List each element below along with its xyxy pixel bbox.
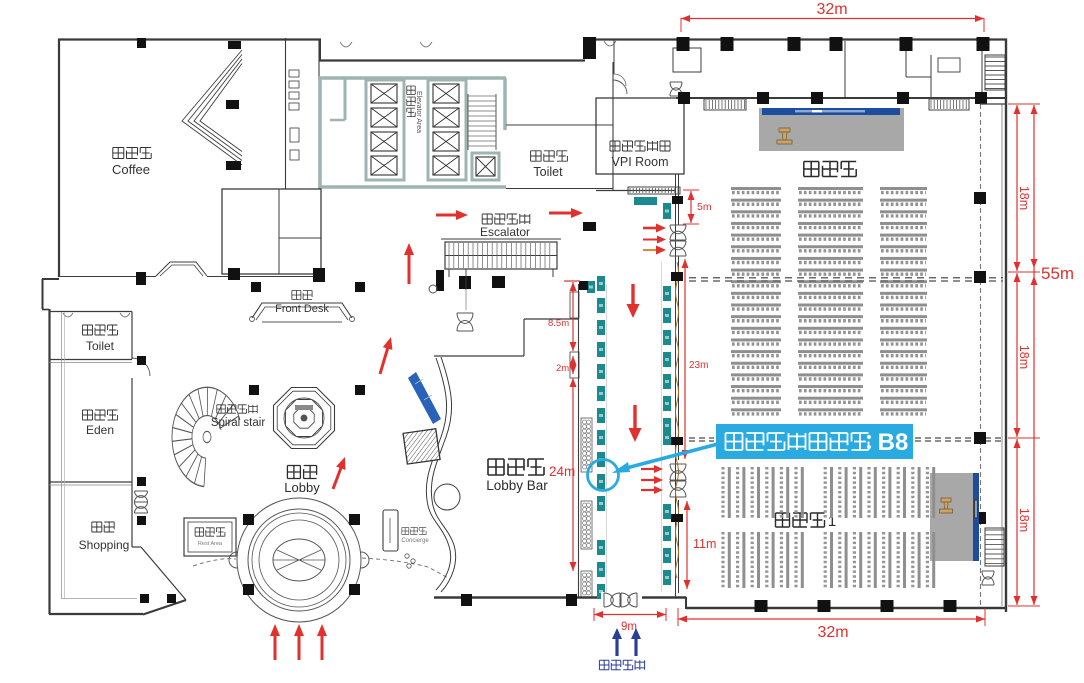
- svg-text:18m: 18m: [1017, 508, 1031, 532]
- svg-text:18m: 18m: [1017, 186, 1031, 210]
- svg-text:Elevator Area: Elevator Area: [415, 91, 422, 133]
- svg-text:VPI Room: VPI Room: [612, 155, 669, 169]
- svg-text:Shopping: Shopping: [79, 538, 130, 552]
- svg-text:11m: 11m: [693, 537, 716, 551]
- svg-text:Escalator: Escalator: [480, 225, 530, 239]
- svg-text:5m: 5m: [697, 201, 712, 213]
- svg-text:8.5m: 8.5m: [548, 318, 569, 329]
- svg-text:32m: 32m: [817, 624, 848, 641]
- svg-text:24m: 24m: [549, 464, 575, 479]
- svg-text:Concierge: Concierge: [401, 538, 429, 544]
- svg-text:55m: 55m: [1041, 264, 1074, 283]
- svg-text:Spiral stair: Spiral stair: [211, 417, 265, 429]
- svg-text:B8: B8: [878, 429, 909, 456]
- svg-text:Lobby Bar: Lobby Bar: [486, 478, 548, 493]
- svg-text:Lobby: Lobby: [284, 480, 320, 495]
- svg-text:Toilet: Toilet: [533, 165, 563, 179]
- svg-text:32m: 32m: [816, 1, 847, 18]
- svg-text:Coffee: Coffee: [112, 162, 150, 177]
- svg-text:18m: 18m: [1017, 345, 1031, 369]
- svg-text:Eden: Eden: [86, 423, 114, 437]
- svg-text:Rest Area: Rest Area: [198, 541, 223, 547]
- svg-text:2m: 2m: [556, 363, 569, 374]
- svg-text:Front Desk: Front Desk: [275, 303, 329, 315]
- svg-text:23m: 23m: [689, 360, 708, 371]
- svg-text:Toilet: Toilet: [86, 339, 115, 353]
